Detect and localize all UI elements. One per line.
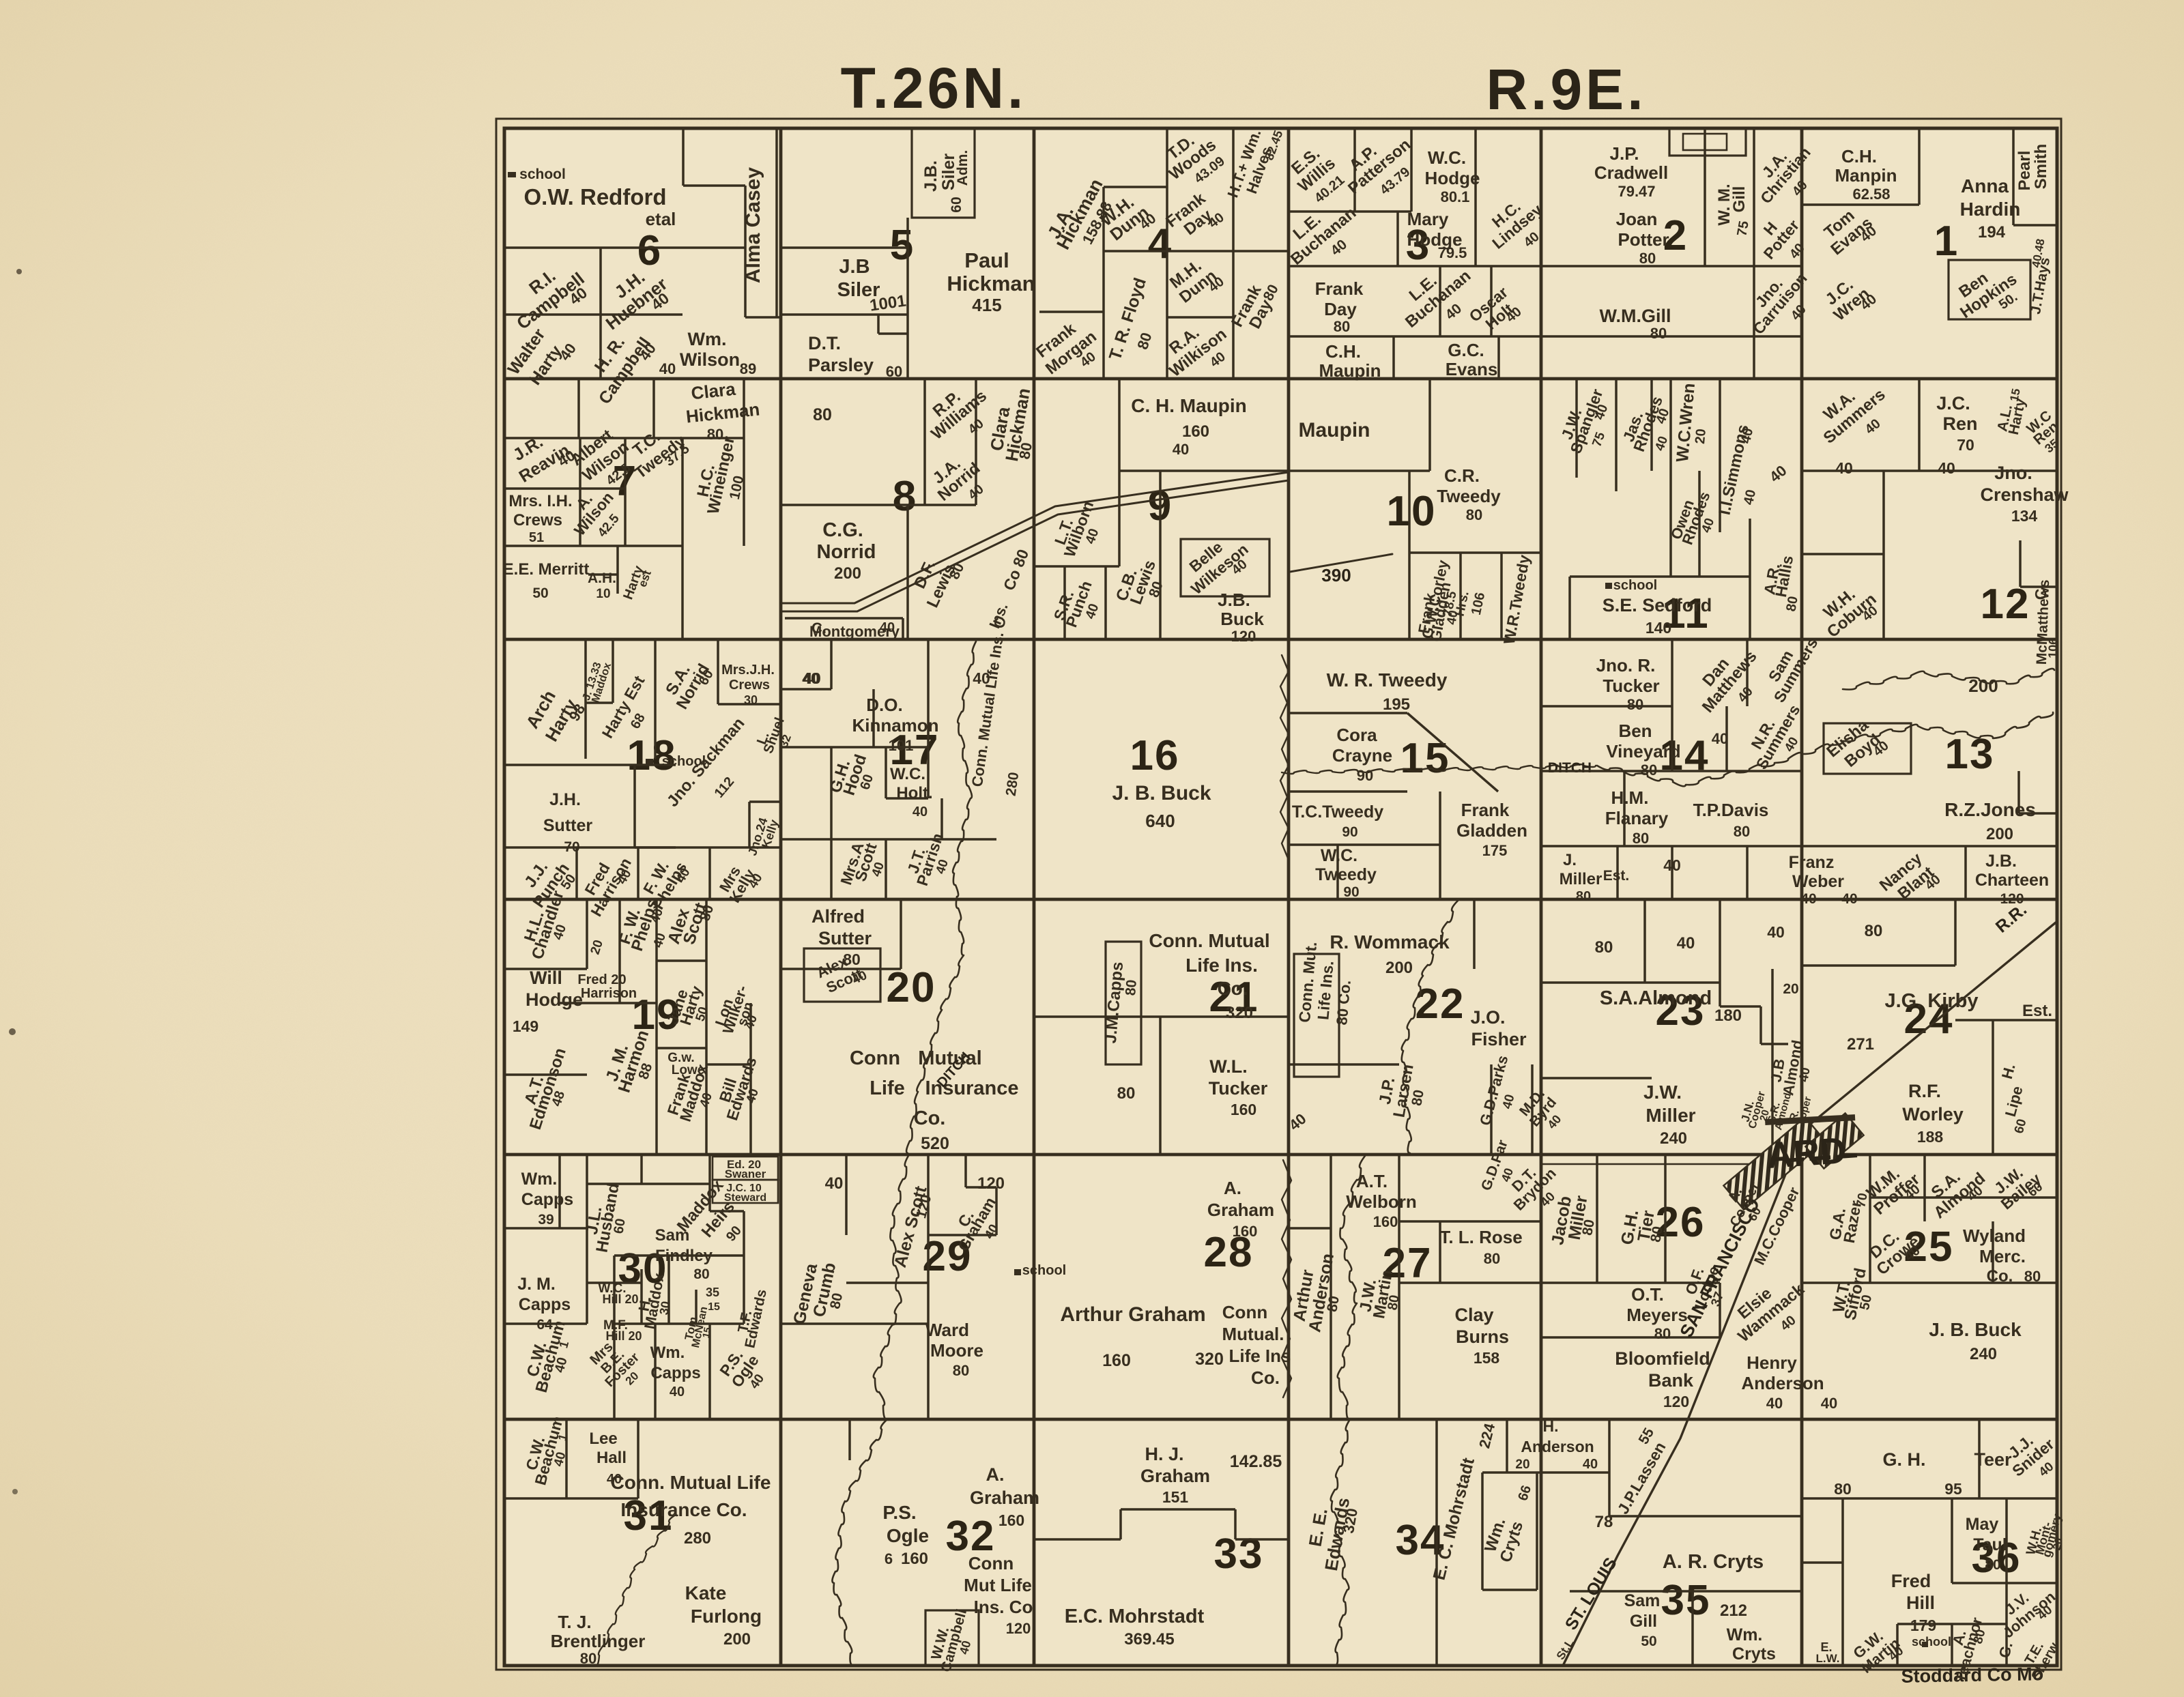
svg-text:80: 80 <box>1985 1557 2000 1573</box>
svg-text:A.H.: A.H. <box>588 570 616 586</box>
svg-text:C. H. Maupin: C. H. Maupin <box>1131 395 1247 416</box>
svg-text:Weber: Weber <box>1792 872 1844 891</box>
svg-text:Meyers: Meyers <box>1626 1305 1688 1325</box>
svg-text:Joan: Joan <box>1616 209 1658 229</box>
svg-text:80: 80 <box>1123 979 1140 996</box>
svg-text:Merc.: Merc. <box>1979 1246 2026 1266</box>
svg-text:134: 134 <box>2011 507 2038 525</box>
svg-text:160: 160 <box>1373 1213 1398 1230</box>
svg-text:5: 5 <box>890 222 915 269</box>
svg-text:Wm.: Wm. <box>688 329 727 349</box>
svg-text:22: 22 <box>1416 981 1465 1028</box>
svg-text:80: 80 <box>2024 1268 2041 1285</box>
svg-text:40: 40 <box>659 360 676 377</box>
svg-text:P.S.: P.S. <box>882 1502 916 1523</box>
svg-text:40: 40 <box>880 620 895 635</box>
svg-text:10: 10 <box>596 587 610 601</box>
svg-text:Anna: Anna <box>1961 175 2009 197</box>
svg-text:Kate: Kate <box>685 1582 727 1604</box>
svg-text:Hill 20: Hill 20 <box>605 1329 642 1343</box>
svg-text:40: 40 <box>1173 441 1189 458</box>
svg-text:175: 175 <box>1482 842 1508 859</box>
svg-text:80: 80 <box>1639 250 1656 267</box>
svg-text:80: 80 <box>1865 922 1883 940</box>
svg-text:40: 40 <box>1766 1395 1783 1412</box>
svg-text:60: 60 <box>949 197 964 212</box>
svg-text:Co.: Co. <box>1987 1267 2013 1286</box>
svg-text:school: school <box>1912 1635 1951 1649</box>
svg-text:T.C.Tweedy: T.C.Tweedy <box>1292 802 1383 822</box>
svg-text:H.: H. <box>1543 1417 1559 1435</box>
svg-text:40: 40 <box>1738 427 1756 445</box>
svg-text:school: school <box>519 166 566 182</box>
svg-text:Frank: Frank <box>1461 800 1510 820</box>
svg-text:13: 13 <box>1945 731 1995 778</box>
svg-text:E.E. Merritt: E.E. Merritt <box>503 560 590 579</box>
svg-text:200: 200 <box>723 1630 751 1649</box>
svg-text:40: 40 <box>1583 1457 1598 1472</box>
svg-text:Fred 20: Fred 20 <box>577 972 626 987</box>
svg-text:8: 8 <box>893 473 917 520</box>
svg-text:Life Ins.: Life Ins. <box>1186 955 1258 976</box>
svg-text:106: 106 <box>2045 637 2060 658</box>
svg-text:40: 40 <box>1841 891 1857 907</box>
svg-text:200: 200 <box>834 564 861 583</box>
svg-text:140: 140 <box>1646 619 1671 637</box>
svg-text:39: 39 <box>538 1212 554 1228</box>
svg-text:79.47: 79.47 <box>1618 183 1655 200</box>
svg-text:C.H.: C.H. <box>1841 146 1877 166</box>
svg-text:30: 30 <box>657 1300 673 1316</box>
svg-text:Conn. Mutual: Conn. Mutual <box>1149 930 1269 951</box>
svg-text:Parsley: Parsley <box>808 355 874 375</box>
svg-text:Co.: Co. <box>1217 978 1248 999</box>
svg-text:6: 6 <box>885 1550 893 1567</box>
svg-text:Conn: Conn <box>850 1047 900 1069</box>
svg-text:Tweedy: Tweedy <box>1315 865 1377 884</box>
svg-text:Hall: Hall <box>597 1449 627 1467</box>
svg-text:80: 80 <box>813 405 832 424</box>
svg-text:Tweedy: Tweedy <box>1437 486 1501 506</box>
svg-text:Welborn: Welborn <box>1346 1191 1417 1212</box>
svg-text:280: 280 <box>1003 771 1022 797</box>
svg-text:Wyland: Wyland <box>1963 1225 2026 1246</box>
svg-text:80.1: 80.1 <box>1441 188 1470 205</box>
svg-text:80: 80 <box>1334 318 1350 335</box>
svg-text:Est.: Est. <box>2022 1002 2052 1020</box>
svg-text:Ren: Ren <box>1942 414 1977 434</box>
svg-text:A̶R̶D̶: A̶R̶D̶ <box>1765 1129 1858 1176</box>
svg-text:6: 6 <box>637 227 662 274</box>
svg-text:Mutual.: Mutual. <box>1222 1324 1284 1344</box>
svg-text:D.T.: D.T. <box>808 333 841 353</box>
svg-text:Burns: Burns <box>1456 1326 1509 1347</box>
svg-text:Hill 20: Hill 20 <box>602 1292 638 1306</box>
svg-text:H. J.: H. J. <box>1145 1444 1183 1464</box>
svg-text:Crayne: Crayne <box>1332 745 1392 766</box>
svg-text:Sutter: Sutter <box>818 928 872 948</box>
svg-text:Mut Life: Mut Life <box>964 1575 1032 1595</box>
svg-text:W.M.Gill: W.M.Gill <box>1600 306 1671 326</box>
svg-text:Franz: Franz <box>1789 853 1835 872</box>
svg-text:Anderson: Anderson <box>1521 1438 1594 1455</box>
svg-text:J. B. Buck: J. B. Buck <box>1112 782 1211 804</box>
svg-text:80: 80 <box>1484 1250 1500 1267</box>
svg-text:80: 80 <box>1627 696 1643 713</box>
svg-text:89: 89 <box>740 360 756 377</box>
svg-text:200: 200 <box>1986 825 2013 843</box>
svg-text:Crews: Crews <box>513 511 562 530</box>
svg-text:J.B.: J.B. <box>1218 590 1250 610</box>
svg-text:160: 160 <box>901 1550 928 1568</box>
svg-text:S.E. Sedford: S.E. Sedford <box>1603 595 1712 615</box>
svg-text:Crews: Crews <box>729 678 770 693</box>
svg-text:Capps: Capps <box>521 1190 573 1209</box>
svg-text:Furlong: Furlong <box>691 1606 762 1627</box>
svg-text:80: 80 <box>1385 1294 1403 1311</box>
svg-text:30: 30 <box>744 693 758 707</box>
svg-text:80: 80 <box>1117 1084 1136 1103</box>
svg-text:Jno.: Jno. <box>1994 463 2032 483</box>
svg-text:J.P.: J.P. <box>1610 143 1639 164</box>
svg-text:R.9E.: R.9E. <box>1486 57 1646 121</box>
svg-text:188: 188 <box>1917 1128 1944 1146</box>
svg-text:415: 415 <box>972 295 1001 315</box>
svg-text:O.W. Redford: O.W. Redford <box>524 184 667 209</box>
svg-text:200: 200 <box>1385 959 1413 977</box>
svg-text:80: 80 <box>1595 938 1613 957</box>
svg-text:Miller: Miller <box>1646 1105 1695 1126</box>
svg-text:75: 75 <box>1734 220 1752 237</box>
svg-text:40: 40 <box>670 1384 685 1399</box>
svg-text:Capps: Capps <box>650 1364 700 1382</box>
svg-text:1: 1 <box>1934 218 1959 265</box>
svg-text:Mrs. I.H.: Mrs. I.H. <box>508 492 572 510</box>
svg-text:Hill: Hill <box>1906 1593 1935 1613</box>
svg-text:60: 60 <box>886 363 902 380</box>
svg-text:G.C.: G.C. <box>1448 340 1484 360</box>
svg-text:40: 40 <box>1800 891 1816 907</box>
svg-text:May: May <box>1966 1515 1999 1534</box>
svg-text:40: 40 <box>825 1174 844 1193</box>
svg-text:80: 80 <box>1734 823 1750 840</box>
svg-text:Worley: Worley <box>1902 1104 1964 1125</box>
svg-text:Bloomfield: Bloomfield <box>1615 1348 1710 1369</box>
svg-text:Swaner: Swaner <box>725 1167 766 1180</box>
svg-text:Alfred: Alfred <box>811 906 865 927</box>
svg-text:R.F.: R.F. <box>1908 1081 1941 1101</box>
svg-text:40: 40 <box>802 669 820 687</box>
svg-text:Conn: Conn <box>1222 1302 1267 1322</box>
svg-text:C.G.: C.G. <box>822 519 863 541</box>
svg-text:Teer: Teer <box>1974 1449 2012 1470</box>
svg-text:20: 20 <box>887 964 936 1011</box>
svg-text:D.O.: D.O. <box>866 695 902 715</box>
svg-text:T. J.: T. J. <box>558 1612 591 1632</box>
svg-text:15: 15 <box>2007 388 2023 403</box>
svg-text:271: 271 <box>1847 1035 1874 1054</box>
svg-text:Hodge: Hodge <box>526 989 583 1010</box>
svg-text:120: 120 <box>977 1174 1005 1193</box>
svg-text:Harrison: Harrison <box>581 986 637 1001</box>
svg-text:40: 40 <box>1835 459 1853 477</box>
svg-text:W. R. Tweedy: W. R. Tweedy <box>1327 669 1448 691</box>
svg-text:Wm.: Wm. <box>1727 1625 1763 1644</box>
svg-text:C.R.: C.R. <box>1444 465 1480 486</box>
svg-text:50: 50 <box>1857 1294 1875 1311</box>
svg-text:Gill: Gill <box>1730 186 1749 213</box>
svg-text:Adm.: Adm. <box>955 150 971 186</box>
svg-text:149: 149 <box>513 1017 538 1035</box>
svg-text:20: 20 <box>1515 1457 1529 1472</box>
svg-text:80: 80 <box>693 1266 709 1282</box>
svg-text:G. H.: G. H. <box>1882 1449 1925 1470</box>
svg-text:J.O.: J.O. <box>1470 1007 1505 1028</box>
svg-text:240: 240 <box>1660 1129 1687 1148</box>
svg-text:Cradwell: Cradwell <box>1594 162 1668 183</box>
svg-text:80: 80 <box>1783 595 1801 613</box>
svg-text:T. L. Rose: T. L. Rose <box>1439 1227 1522 1247</box>
svg-text:70: 70 <box>1957 436 1974 454</box>
svg-text:640: 640 <box>1145 811 1175 831</box>
svg-text:Arthur Graham: Arthur Graham <box>1060 1303 1205 1326</box>
svg-text:Pearl: Pearl <box>2015 151 2034 191</box>
svg-text:Jno. R.: Jno. R. <box>1596 655 1656 676</box>
svg-text:79.5: 79.5 <box>1438 244 1467 261</box>
svg-text:Clay: Clay <box>1454 1305 1493 1325</box>
svg-text:Co.: Co. <box>1251 1367 1280 1388</box>
svg-text:90: 90 <box>1357 767 1373 784</box>
svg-text:120: 120 <box>1006 1620 1031 1637</box>
svg-text:J.W.: J.W. <box>1643 1082 1682 1103</box>
svg-text:Conn. Mutual Life: Conn. Mutual Life <box>611 1472 771 1493</box>
svg-text:179: 179 <box>1910 1616 1936 1634</box>
svg-text:Norrid: Norrid <box>817 541 876 563</box>
svg-text:Graham: Graham <box>1140 1466 1210 1486</box>
svg-text:Anderson: Anderson <box>1741 1373 1824 1393</box>
svg-text:W.L.: W.L. <box>1209 1056 1248 1077</box>
svg-text:158: 158 <box>1474 1349 1500 1367</box>
svg-text:90: 90 <box>1343 884 1359 900</box>
svg-text:J. B. Buck: J. B. Buck <box>1929 1319 2022 1340</box>
svg-text:Tucker: Tucker <box>1603 676 1659 696</box>
svg-text:Capps: Capps <box>519 1295 571 1314</box>
svg-text:Paul: Paul <box>964 248 1009 272</box>
svg-text:C.H.: C.H. <box>1325 341 1361 362</box>
svg-text:40: 40 <box>1677 934 1695 953</box>
svg-text:80: 80 <box>1324 1294 1342 1313</box>
svg-text:Tucker: Tucker <box>1209 1078 1268 1099</box>
svg-text:60: 60 <box>611 1217 629 1235</box>
svg-text:Mrs.J.H.: Mrs.J.H. <box>721 663 775 678</box>
svg-text:Lee: Lee <box>589 1430 617 1448</box>
svg-text:142.85: 142.85 <box>1230 1452 1282 1471</box>
svg-text:Maupin: Maupin <box>1299 419 1370 441</box>
svg-text:Fisher: Fisher <box>1471 1029 1527 1049</box>
svg-text:Est.: Est. <box>1603 868 1630 884</box>
svg-text:212: 212 <box>1720 1601 1747 1620</box>
svg-text:Potter: Potter <box>1618 229 1669 250</box>
svg-text:62.58: 62.58 <box>1852 186 1890 203</box>
svg-text:40: 40 <box>1444 609 1461 626</box>
svg-text:40: 40 <box>1741 489 1759 506</box>
svg-text:194: 194 <box>1978 223 2006 242</box>
svg-text:Gladden: Gladden <box>1456 820 1527 841</box>
svg-text:240: 240 <box>1970 1345 1997 1363</box>
svg-text:35: 35 <box>1661 1577 1711 1624</box>
svg-text:80: 80 <box>1016 441 1035 460</box>
svg-text:Holt.: Holt. <box>896 784 932 802</box>
svg-text:Alma Casey: Alma Casey <box>742 167 764 283</box>
svg-text:15: 15 <box>708 1301 720 1313</box>
svg-text:W.C.: W.C. <box>1428 147 1466 168</box>
svg-text:120: 120 <box>1231 628 1256 645</box>
svg-text:95: 95 <box>1944 1480 1962 1498</box>
svg-text:40: 40 <box>1712 730 1728 747</box>
svg-text:Miller: Miller <box>1560 870 1603 888</box>
svg-text:A. R. Cryts: A. R. Cryts <box>1663 1551 1764 1573</box>
svg-text:Flanary: Flanary <box>1605 808 1669 828</box>
svg-text:80: 80 <box>1648 1225 1666 1243</box>
svg-text:101: 101 <box>889 737 914 754</box>
svg-text:Graham: Graham <box>1207 1200 1274 1220</box>
svg-text:J.B.: J.B. <box>1985 852 2017 871</box>
svg-text:120: 120 <box>1663 1393 1689 1410</box>
svg-text:280: 280 <box>684 1529 711 1548</box>
svg-text:Graham: Graham <box>970 1488 1039 1508</box>
svg-text:Ben: Ben <box>1618 721 1652 741</box>
svg-text:Fred: Fred <box>1891 1571 1931 1591</box>
svg-text:80: 80 <box>1834 1480 1852 1498</box>
svg-text:Wm.: Wm. <box>650 1344 685 1362</box>
svg-text:320: 320 <box>1195 1350 1224 1369</box>
svg-text:Life Ins: Life Ins <box>1228 1346 1291 1366</box>
svg-text:Conn: Conn <box>968 1553 1014 1573</box>
svg-text:51: 51 <box>529 530 544 545</box>
svg-text:R. Wommack: R. Wommack <box>1330 931 1450 953</box>
svg-text:Mary: Mary <box>1407 209 1449 229</box>
svg-text:Co.: Co. <box>914 1107 946 1129</box>
svg-text:W.C.: W.C. <box>890 765 925 783</box>
svg-text:Moore: Moore <box>930 1340 983 1361</box>
svg-text:S.A.Almond: S.A.Almond <box>1600 987 1712 1009</box>
svg-text:160: 160 <box>1182 422 1209 441</box>
svg-text:R.Z.Jones: R.Z.Jones <box>1944 799 2036 820</box>
svg-text:Cryts: Cryts <box>1732 1644 1776 1664</box>
svg-text:40: 40 <box>1938 459 1955 477</box>
svg-text:Brentlinger: Brentlinger <box>551 1631 646 1651</box>
svg-text:Vineyard: Vineyard <box>1606 741 1680 762</box>
svg-text:35: 35 <box>706 1286 719 1299</box>
svg-text:J.H.: J.H. <box>549 790 581 809</box>
svg-text:50: 50 <box>1641 1634 1656 1649</box>
svg-text:Buck: Buck <box>1220 609 1264 629</box>
svg-text:80: 80 <box>827 1292 846 1311</box>
svg-text:etal: etal <box>646 209 676 229</box>
svg-text:Ogle: Ogle <box>887 1525 929 1546</box>
svg-text:80: 80 <box>1576 889 1591 904</box>
svg-text:40: 40 <box>1796 1067 1813 1083</box>
svg-text:Ward: Ward <box>925 1320 969 1340</box>
svg-text:369.45: 369.45 <box>1124 1630 1174 1649</box>
svg-text:Charteen: Charteen <box>1975 871 2049 890</box>
svg-text:80: 80 <box>1654 1325 1671 1342</box>
svg-text:Smith: Smith <box>2032 144 2050 190</box>
svg-text:180: 180 <box>1714 1006 1742 1025</box>
svg-text:J.G. Kirby: J.G. Kirby <box>1885 990 1979 1012</box>
svg-text:40: 40 <box>1663 856 1681 874</box>
svg-text:Steward: Steward <box>724 1192 766 1204</box>
svg-text:Maupin: Maupin <box>1319 360 1381 381</box>
svg-text:Cora: Cora <box>1336 725 1377 745</box>
svg-text:80: 80 <box>1466 506 1482 523</box>
svg-text:Sutter: Sutter <box>543 816 593 835</box>
svg-text:E.C. Mohrstadt: E.C. Mohrstadt <box>1065 1606 1205 1627</box>
svg-text:school: school <box>1022 1263 1066 1278</box>
svg-text:Manpin: Manpin <box>1835 165 1897 186</box>
svg-text:33: 33 <box>1214 1531 1264 1578</box>
svg-text:50: 50 <box>532 585 548 601</box>
svg-text:Day: Day <box>1324 299 1357 319</box>
svg-text:Taul: Taul <box>1973 1535 2007 1554</box>
svg-text:Hodge: Hodge <box>1425 168 1480 188</box>
svg-text:Findley: Findley <box>655 1247 713 1265</box>
svg-text:T.26N.: T.26N. <box>841 56 1027 120</box>
svg-text:Evans: Evans <box>1446 359 1498 379</box>
svg-text:80: 80 <box>1579 1218 1598 1236</box>
svg-text:Hardin: Hardin <box>1960 199 2021 220</box>
svg-text:J. M.: J. M. <box>517 1275 556 1294</box>
svg-text:16: 16 <box>1130 732 1180 779</box>
svg-text:Life: Life <box>870 1077 905 1099</box>
svg-text:151: 151 <box>1162 1488 1189 1506</box>
svg-text:Henry: Henry <box>1747 1352 1797 1373</box>
svg-text:Ins. Co: Ins. Co <box>974 1597 1033 1617</box>
svg-text:J.C.: J.C. <box>1936 393 1970 414</box>
svg-text:160: 160 <box>1233 1223 1258 1240</box>
svg-text:160: 160 <box>998 1511 1024 1529</box>
svg-text:160: 160 <box>1102 1351 1131 1370</box>
svg-text:Sam: Sam <box>655 1226 690 1245</box>
svg-text:Crenshaw: Crenshaw <box>1980 484 2069 505</box>
svg-text:Sam: Sam <box>1624 1591 1661 1610</box>
svg-text:Wm.: Wm. <box>521 1170 558 1189</box>
svg-text:A.: A. <box>986 1464 1005 1485</box>
svg-text:J.B: J.B <box>839 256 870 278</box>
svg-text:20: 20 <box>1693 428 1709 444</box>
svg-text:H.M.: H.M. <box>1611 787 1649 808</box>
svg-text:320: 320 <box>1226 1004 1253 1022</box>
svg-text:80: 80 <box>953 1362 969 1379</box>
svg-text:10: 10 <box>1387 488 1437 535</box>
svg-text:Kinnamon: Kinnamon <box>852 715 938 736</box>
svg-text:T.P.Davis: T.P.Davis <box>1693 800 1769 820</box>
svg-text:L.W.: L.W. <box>1816 1652 1840 1665</box>
svg-text:390: 390 <box>1321 565 1351 585</box>
svg-text:40: 40 <box>1767 923 1785 941</box>
svg-text:160: 160 <box>1231 1101 1256 1118</box>
svg-text:DITCH: DITCH <box>1548 760 1592 776</box>
svg-text:90: 90 <box>1342 824 1357 840</box>
svg-text:40: 40 <box>913 804 928 820</box>
svg-text:80: 80 <box>1633 830 1649 847</box>
svg-text:520: 520 <box>921 1134 949 1153</box>
svg-text:Will: Will <box>530 968 562 988</box>
svg-text:J.: J. <box>1563 851 1577 869</box>
svg-text:Frank: Frank <box>1315 278 1364 299</box>
svg-text:20: 20 <box>1783 981 1798 997</box>
svg-text:school: school <box>1613 578 1657 593</box>
